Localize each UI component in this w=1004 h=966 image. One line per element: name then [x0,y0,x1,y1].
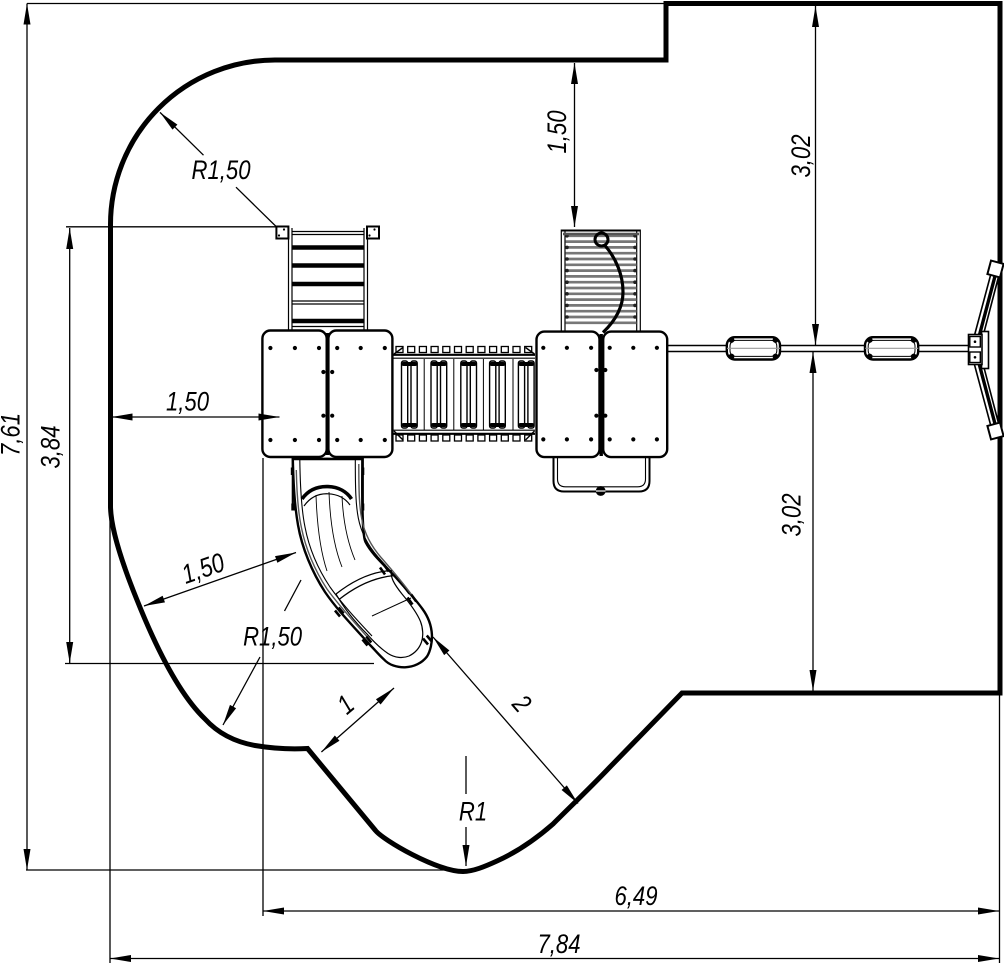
svg-text:3,02: 3,02 [778,493,808,536]
svg-text:R1,50: R1,50 [243,623,302,653]
svg-text:7,84: 7,84 [537,930,580,960]
svg-text:7,61: 7,61 [0,413,26,456]
svg-text:R1: R1 [459,798,487,828]
svg-text:1,50: 1,50 [166,388,209,418]
svg-text:6,49: 6,49 [614,882,657,912]
svg-text:3,02: 3,02 [787,134,817,177]
svg-text:1,50: 1,50 [543,110,573,153]
svg-text:R1,50: R1,50 [191,156,250,186]
svg-text:3,84: 3,84 [37,425,67,468]
